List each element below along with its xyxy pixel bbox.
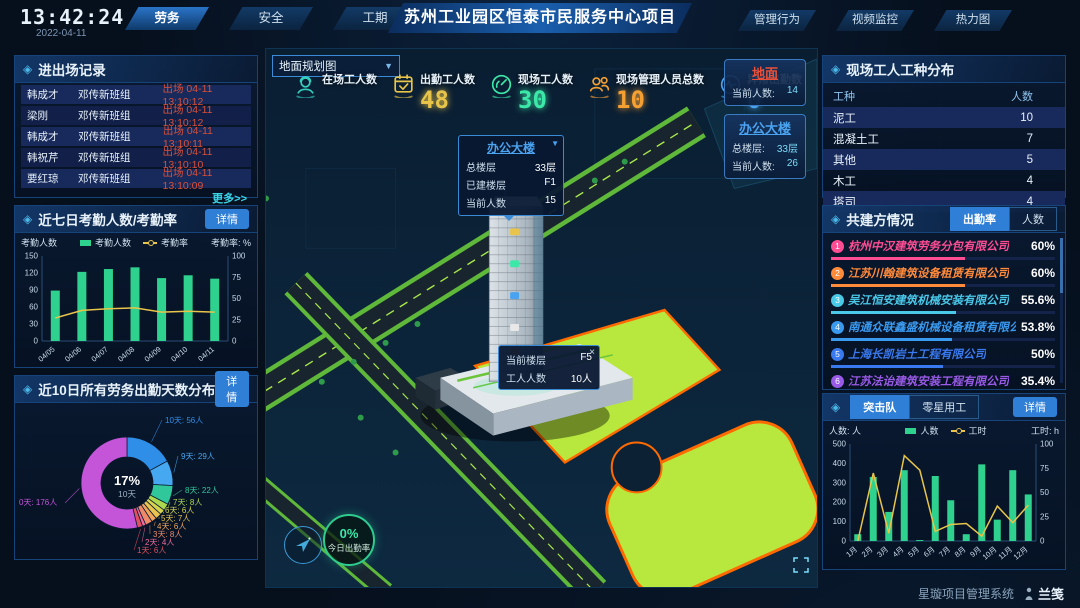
svg-text:5月: 5月 bbox=[906, 545, 921, 559]
project-title: 苏州工业园区恒泰市民服务中心项目 bbox=[388, 3, 692, 33]
zone-cards: 地面当前人数:14办公大楼总楼层:33层当前人数:26 bbox=[724, 59, 806, 179]
worker-types-panel: ◈ 现场工人工种分布 工种 人数 泥工10混凝土工7其他5木工4塔司4 bbox=[822, 55, 1066, 198]
svg-text:100: 100 bbox=[833, 517, 847, 526]
worker-name: 韩祝芹 bbox=[27, 150, 78, 165]
svg-text:12月: 12月 bbox=[1012, 545, 1030, 562]
weekly-attendance-title: 近七日考勤人数/考勤率 bbox=[38, 209, 177, 229]
popup-label: 工人人数 bbox=[506, 370, 546, 385]
today-attendance-badge: 0% 今日出勤率 bbox=[323, 514, 375, 566]
worker-name: 韩成才 bbox=[27, 129, 78, 144]
svg-text:10天: 10天 bbox=[118, 489, 136, 499]
svg-text:10天: 56人: 10天: 56人 bbox=[165, 416, 203, 425]
stat-label: 出勤工人数 bbox=[420, 71, 475, 87]
building-popup-row: 已建楼层F1 bbox=[466, 177, 556, 192]
panel-diamond-icon: ◈ bbox=[831, 400, 840, 414]
nav-right-group: 管理行为视频监控热力图 bbox=[738, 10, 1012, 31]
stat-出勤工人数: 出勤工人数48 bbox=[390, 71, 475, 112]
svg-text:04/08: 04/08 bbox=[116, 345, 136, 364]
worker-type-name: 木工 bbox=[833, 173, 856, 189]
close-icon[interactable]: × bbox=[589, 347, 595, 358]
svg-text:04/11: 04/11 bbox=[196, 345, 216, 364]
stat-value: 48 bbox=[420, 88, 475, 112]
worker-type-name: 泥工 bbox=[833, 110, 856, 126]
zone-value: 26 bbox=[787, 158, 798, 173]
zone-card-title: 办公大楼 bbox=[732, 118, 798, 137]
svg-text:30: 30 bbox=[29, 320, 38, 329]
svg-text:90: 90 bbox=[29, 286, 38, 295]
svg-text:300: 300 bbox=[833, 478, 847, 487]
partner-name: 南通众联鑫盛机械设备租赁有限公司 bbox=[848, 319, 1016, 335]
stat-label: 现场工人数 bbox=[518, 71, 573, 87]
svg-text:0: 0 bbox=[1040, 537, 1045, 546]
svg-text:04/07: 04/07 bbox=[90, 345, 110, 364]
nav-button-安全[interactable]: 安全 bbox=[229, 7, 313, 30]
partner-progress bbox=[831, 311, 1055, 314]
days-distribution-detail-button[interactable]: 详情 bbox=[215, 371, 249, 407]
weekly-attendance-detail-button[interactable]: 详情 bbox=[205, 209, 249, 229]
partner-name: 吴江恒安建筑机械安装有限公司 bbox=[848, 292, 1009, 308]
svg-text:75: 75 bbox=[232, 273, 241, 282]
rank-badge: 3 bbox=[831, 294, 844, 307]
zone-card-row: 当前人数:14 bbox=[732, 85, 798, 100]
building-popup-row: 当前人数15 bbox=[466, 195, 556, 210]
legend-line-label: 考勤率 bbox=[161, 236, 188, 249]
svg-text:120: 120 bbox=[25, 269, 39, 278]
entry-exit-panel: ◈ 进出场记录 韩成才邓传新班组出场 04-11 13:10:12梁刚邓传新班组… bbox=[14, 55, 258, 198]
stat-value: 30 bbox=[518, 88, 573, 112]
team-name: 邓传新班组 bbox=[78, 87, 162, 102]
svg-text:500: 500 bbox=[833, 440, 847, 449]
partners-title: 共建方情况 bbox=[846, 209, 914, 229]
floor-popup: × 当前楼层F5工人人数10人 bbox=[498, 345, 600, 390]
team-name: 邓传新班组 bbox=[78, 129, 163, 144]
building-popup-title: 办公大楼 bbox=[466, 139, 556, 156]
svg-text:50: 50 bbox=[232, 294, 241, 303]
zone-card-地面[interactable]: 地面当前人数:14 bbox=[724, 59, 806, 106]
zone-card-row: 总楼层:33层 bbox=[732, 140, 798, 155]
progress-fill bbox=[831, 338, 952, 341]
partner-value: 55.6% bbox=[1021, 293, 1055, 307]
worker-types-header: 工种 人数 bbox=[823, 83, 1065, 107]
legend-bar-swatch bbox=[905, 428, 916, 434]
partner-progress bbox=[831, 257, 1055, 260]
nav-button-管理行为[interactable]: 管理行为 bbox=[738, 10, 816, 31]
clock-time: 13:42:24 bbox=[20, 5, 124, 29]
svg-text:50: 50 bbox=[1040, 488, 1049, 497]
zone-label: 当前人数: bbox=[732, 85, 775, 100]
partner-row: 1杭州中汉建筑劳务分包有限公司60% bbox=[831, 238, 1055, 260]
building-popup-row: 总楼层33层 bbox=[466, 159, 556, 174]
svg-text:04/09: 04/09 bbox=[143, 345, 163, 364]
tab-casual-labor[interactable]: 零星用工 bbox=[909, 395, 979, 419]
worker-type-row: 混凝土工7 bbox=[823, 128, 1065, 149]
rank-badge: 4 bbox=[831, 321, 844, 334]
progress-fill bbox=[831, 365, 943, 368]
partner-name: 上海长凯岩土工程有限公司 bbox=[848, 346, 986, 362]
panel-diamond-icon: ◈ bbox=[23, 212, 32, 226]
partners-list: 1杭州中汉建筑劳务分包有限公司60%2江苏川翰建筑设备租赁有限公司60%3吴江恒… bbox=[823, 238, 1065, 390]
tab-headcount[interactable]: 人数 bbox=[1009, 207, 1057, 231]
popup-value: 15 bbox=[545, 195, 556, 210]
worker-type-name: 其他 bbox=[833, 152, 856, 168]
worker-type-count: 7 bbox=[1027, 133, 1055, 145]
svg-text:1天: 6人: 1天: 6人 bbox=[137, 546, 166, 555]
partner-value: 60% bbox=[1031, 266, 1055, 280]
task-force-panel: ◈ 突击队 零星用工 详情 人数: 人 人数 工时 工时: h 01002003… bbox=[822, 393, 1066, 570]
partner-name: 江苏川翰建筑设备租赁有限公司 bbox=[848, 265, 1009, 281]
svg-text:100: 100 bbox=[1040, 440, 1054, 449]
rank-badge: 5 bbox=[831, 348, 844, 361]
worker-icon bbox=[292, 71, 319, 103]
legend-bar-label: 人数 bbox=[920, 424, 938, 437]
left-axis-label: 考勤人数 bbox=[21, 236, 57, 249]
chevron-down-icon: ▼ bbox=[384, 61, 393, 71]
partner-value: 35.4% bbox=[1021, 374, 1055, 388]
partner-value: 53.8% bbox=[1021, 320, 1055, 334]
entry-exit-list: 韩成才邓传新班组出场 04-11 13:10:12梁刚邓传新班组出场 04-11… bbox=[15, 85, 257, 188]
rank-badge: 6 bbox=[831, 375, 844, 388]
panel-diamond-icon: ◈ bbox=[23, 62, 32, 76]
today-attendance-label: 今日出勤率 bbox=[328, 542, 371, 554]
team-name: 邓传新班组 bbox=[78, 171, 162, 186]
worker-name: 韩成才 bbox=[27, 87, 78, 102]
top-bar: 13:42:24 2022-04-11 劳务安全工期 苏州工业园区恒泰市民服务中… bbox=[0, 0, 1080, 48]
worker-type-count: 4 bbox=[1027, 175, 1055, 187]
fullscreen-icon[interactable] bbox=[793, 557, 809, 573]
popup-label: 当前楼层 bbox=[506, 352, 546, 367]
legend-bar-swatch bbox=[80, 240, 91, 246]
stat-现场管理人员总数: 现场管理人员总数10 bbox=[586, 71, 704, 112]
svg-text:150: 150 bbox=[25, 252, 39, 261]
worker-name: 要红琼 bbox=[27, 171, 78, 186]
right-axis-label: 考勤率: % bbox=[211, 236, 251, 249]
legend-line-label: 工时 bbox=[969, 424, 987, 437]
floor-popup-row: 当前楼层F5 bbox=[506, 352, 592, 367]
scrollbar-thumb[interactable] bbox=[1060, 238, 1063, 293]
svg-text:8天: 22人: 8天: 22人 bbox=[185, 486, 219, 495]
partner-row: 5上海长凯岩土工程有限公司50% bbox=[831, 346, 1055, 368]
progress-fill bbox=[831, 284, 965, 287]
stat-在场工人数: 在场工人数 bbox=[292, 71, 377, 112]
svg-text:100: 100 bbox=[232, 252, 246, 261]
svg-text:8月: 8月 bbox=[953, 545, 968, 559]
popup-label: 当前人数 bbox=[466, 195, 506, 210]
zone-value: 14 bbox=[787, 85, 798, 100]
chevron-down-icon[interactable]: ▼ bbox=[551, 139, 559, 148]
svg-text:9月: 9月 bbox=[968, 545, 983, 559]
partner-value: 50% bbox=[1031, 347, 1055, 361]
partner-progress bbox=[831, 284, 1055, 287]
partner-name: 杭州中汉建筑劳务分包有限公司 bbox=[848, 238, 1009, 254]
svg-text:10月: 10月 bbox=[981, 545, 999, 562]
nav-left-group: 劳务安全工期 bbox=[125, 7, 417, 30]
left-axis-label: 人数: 人 bbox=[829, 424, 861, 437]
worker-type-row: 其他5 bbox=[823, 149, 1065, 170]
partners-panel: ◈ 共建方情况 出勤率 人数 1杭州中汉建筑劳务分包有限公司60%2江苏川翰建筑… bbox=[822, 205, 1066, 390]
weekly-attendance-panel: ◈ 近七日考勤人数/考勤率 详情 考勤人数 考勤人数 考勤率 考勤率: % 03… bbox=[14, 205, 258, 368]
entry-exit-title: 进出场记录 bbox=[38, 59, 106, 79]
days-distribution-donut-chart: 10天: 56人9天: 29人8天: 22人7天: 8人6天: 6人5天: 7人… bbox=[15, 403, 257, 560]
svg-text:1月: 1月 bbox=[844, 545, 859, 559]
svg-text:60: 60 bbox=[29, 303, 38, 312]
partner-progress bbox=[831, 365, 1055, 368]
panel-diamond-icon: ◈ bbox=[23, 382, 32, 396]
popup-label: 总楼层 bbox=[466, 159, 496, 174]
svg-text:0: 0 bbox=[34, 337, 39, 346]
svg-text:6月: 6月 bbox=[922, 545, 937, 559]
system-name: 星璇项目管理系统 bbox=[918, 585, 1014, 602]
task-force-chart: 010020030040050002550751001月2月3月4月5月6月7月… bbox=[823, 437, 1063, 567]
compass-icon[interactable] bbox=[284, 526, 322, 564]
partner-row: 4南通众联鑫盛机械设备租赁有限公司53.8% bbox=[831, 319, 1055, 341]
days-distribution-panel: ◈ 近10日所有劳务出勤天数分布 详情 10天: 56人9天: 29人8天: 2… bbox=[14, 375, 258, 560]
worker-type-row: 泥工10 bbox=[823, 107, 1065, 128]
svg-text:04/05: 04/05 bbox=[36, 345, 56, 364]
entry-exit-row: 要红琼邓传新班组出场 04-11 13:10:09 bbox=[21, 169, 251, 188]
calendar-check-icon bbox=[390, 71, 417, 103]
team-name: 邓传新班组 bbox=[78, 150, 162, 165]
rank-badge: 2 bbox=[831, 267, 844, 280]
team-name: 邓传新班组 bbox=[78, 108, 162, 123]
partner-row: 2江苏川翰建筑设备租赁有限公司60% bbox=[831, 265, 1055, 287]
svg-text:9天: 29人: 9天: 29人 bbox=[181, 452, 215, 461]
worker-name: 梁刚 bbox=[27, 108, 78, 123]
stat-value: 10 bbox=[616, 88, 704, 112]
worker-types-title: 现场工人工种分布 bbox=[846, 59, 954, 79]
site-map: 地面规划图 ▼ 在场工人数出勤工人数48现场工人数30现场管理人员总数10异常出… bbox=[265, 48, 818, 588]
zone-label: 总楼层: bbox=[732, 140, 765, 155]
zone-card-title: 地面 bbox=[732, 63, 798, 82]
zone-label: 当前人数: bbox=[732, 158, 775, 173]
footer: 星璇项目管理系统 兰笺 bbox=[918, 584, 1064, 603]
svg-text:04/06: 04/06 bbox=[63, 345, 83, 364]
svg-text:25: 25 bbox=[1040, 512, 1049, 521]
svg-text:4月: 4月 bbox=[891, 545, 906, 559]
legend-line-swatch bbox=[951, 430, 965, 432]
popup-value: 10人 bbox=[571, 370, 592, 385]
gauge-icon bbox=[488, 71, 515, 103]
tab-attendance-rate[interactable]: 出勤率 bbox=[950, 207, 1009, 231]
partner-row: 6江苏法诒建筑安装工程有限公司35.4% bbox=[831, 373, 1055, 390]
popup-value: F1 bbox=[544, 177, 556, 192]
rank-badge: 1 bbox=[831, 240, 844, 253]
floor-popup-row: 工人人数10人 bbox=[506, 370, 592, 385]
svg-text:25: 25 bbox=[232, 315, 241, 324]
stat-label: 在场工人数 bbox=[322, 71, 377, 87]
progress-fill bbox=[831, 311, 956, 314]
svg-text:7月: 7月 bbox=[937, 545, 952, 559]
today-attendance-value: 0% bbox=[340, 526, 359, 541]
svg-text:200: 200 bbox=[833, 498, 847, 507]
svg-text:11月: 11月 bbox=[997, 545, 1015, 562]
stat-label: 现场管理人员总数 bbox=[616, 71, 704, 87]
svg-text:0天: 176人: 0天: 176人 bbox=[19, 498, 57, 507]
progress-fill bbox=[831, 257, 965, 260]
svg-text:0: 0 bbox=[842, 537, 847, 546]
people-icon bbox=[586, 71, 613, 103]
partner-value: 60% bbox=[1031, 239, 1055, 253]
stat-现场工人数: 现场工人数30 bbox=[488, 71, 573, 112]
building-popup: 办公大楼 ▼ 总楼层33层已建楼层F1当前人数15 bbox=[458, 135, 564, 216]
clock-date: 2022-04-11 bbox=[36, 28, 86, 39]
legend-bar-label: 考勤人数 bbox=[95, 236, 131, 249]
worker-type-count: 10 bbox=[1020, 112, 1055, 124]
popup-label: 已建楼层 bbox=[466, 177, 506, 192]
partners-scrollbar bbox=[1060, 238, 1063, 383]
partner-row: 3吴江恒安建筑机械安装有限公司55.6% bbox=[831, 292, 1055, 314]
brand-logo: 兰笺 bbox=[1024, 584, 1064, 603]
zone-value: 33层 bbox=[777, 140, 798, 155]
svg-text:400: 400 bbox=[833, 459, 847, 468]
task-force-detail-button[interactable]: 详情 bbox=[1013, 397, 1057, 417]
svg-text:17%: 17% bbox=[114, 473, 140, 488]
nav-button-劳务[interactable]: 劳务 bbox=[125, 7, 209, 30]
tab-task-force[interactable]: 突击队 bbox=[850, 395, 909, 419]
svg-text:3月: 3月 bbox=[875, 545, 890, 559]
svg-text:0: 0 bbox=[232, 337, 237, 346]
svg-text:2月: 2月 bbox=[860, 545, 875, 559]
partner-progress bbox=[831, 338, 1055, 341]
zone-card-row: 当前人数:26 bbox=[732, 158, 798, 173]
weekly-attendance-chart: 0306090120150025507510004/0504/0604/0704… bbox=[15, 249, 255, 367]
days-distribution-title: 近10日所有劳务出勤天数分布 bbox=[38, 379, 215, 399]
worker-type-name: 混凝土工 bbox=[833, 131, 879, 147]
panel-diamond-icon: ◈ bbox=[831, 62, 840, 76]
panel-diamond-icon: ◈ bbox=[831, 212, 840, 226]
worker-type-count: 5 bbox=[1027, 154, 1055, 166]
exit-event: 出场 04-11 13:10:09 bbox=[162, 165, 245, 192]
svg-text:75: 75 bbox=[1040, 464, 1049, 473]
legend-line-swatch bbox=[143, 242, 157, 244]
popup-value: 33层 bbox=[535, 159, 556, 174]
right-axis-label: 工时: h bbox=[1031, 424, 1059, 437]
zone-card-办公大楼[interactable]: 办公大楼总楼层:33层当前人数:26 bbox=[724, 114, 806, 179]
partner-name: 江苏法诒建筑安装工程有限公司 bbox=[848, 373, 1009, 389]
svg-text:04/10: 04/10 bbox=[169, 345, 189, 364]
worker-types-list: 泥工10混凝土工7其他5木工4塔司4 bbox=[823, 107, 1065, 212]
more-link[interactable]: 更多>> bbox=[15, 190, 247, 206]
nav-button-视频监控[interactable]: 视频监控 bbox=[836, 10, 914, 31]
worker-type-row: 木工4 bbox=[823, 170, 1065, 191]
nav-button-热力图[interactable]: 热力图 bbox=[934, 10, 1012, 31]
